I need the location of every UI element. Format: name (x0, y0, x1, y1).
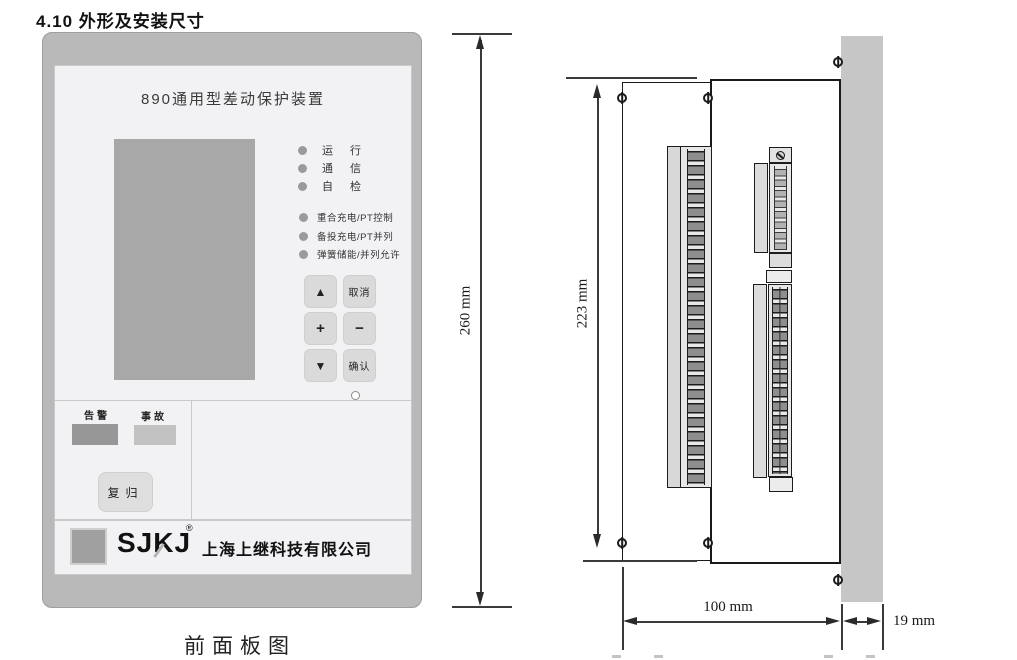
run-led-label: 运 行 (322, 142, 368, 158)
dim260-arrow-up-icon (476, 35, 484, 49)
plus-button: + (304, 312, 337, 345)
fault-label: 事故 (141, 408, 167, 423)
dim19-arrow-left-icon (843, 617, 857, 625)
selfcheck-led-label: 自 检 (322, 178, 368, 194)
fault-lamp-icon (134, 425, 176, 445)
front-panel-caption: 前面板图 (184, 630, 296, 660)
terminal-screw-box (769, 147, 792, 163)
registered-mark: ® (186, 523, 193, 533)
company-name: 上海上继科技有限公司 (202, 536, 372, 560)
reclose-led-icon (299, 213, 308, 222)
dim100-label: 100 mm (697, 599, 759, 616)
led-row-spring: 弹簧储能/并列允许 (299, 247, 400, 261)
dim100-arrow-left-icon (623, 617, 637, 625)
lcd-screen (114, 139, 255, 380)
panel-screw-icon (351, 391, 360, 400)
case-screw-top-right-icon (703, 93, 713, 103)
terminal-upper-cells-strip (774, 166, 787, 250)
dim223-arrow-down-icon (593, 534, 601, 548)
terminal-upper-rail (754, 163, 768, 253)
terminal-lower-cells-strip (772, 287, 788, 474)
led-row-backup: 备投充电/PT并列 (299, 229, 393, 243)
signal-lamp-box: 告警 事故 复归 (54, 400, 192, 520)
dim260-label: 260 mm (457, 286, 474, 336)
selfcheck-led-icon (298, 182, 307, 191)
dim19-label: 19 mm (893, 613, 935, 630)
dim100-left-ext (622, 567, 624, 650)
dim19-left-ext (841, 604, 843, 650)
cutoff-mark (654, 655, 663, 658)
led-row-reclose: 重合充电/PT控制 (299, 210, 393, 224)
dim223-line (597, 92, 599, 542)
spring-led-label: 弹簧储能/并列允许 (317, 247, 400, 261)
case-screw-top-left-icon (617, 93, 627, 103)
terminal-screw-icon (776, 151, 785, 160)
alarm-lamp-icon (72, 424, 118, 445)
cutoff-mark (824, 655, 833, 658)
dim100-line (630, 621, 832, 623)
dim19-right-ext (882, 604, 884, 650)
case-screw-bottom-right-icon (703, 538, 713, 548)
confirm-button: 确认 (343, 349, 376, 382)
panel-screw-bottom-icon (833, 575, 843, 585)
cutoff-mark (866, 655, 875, 658)
cutoff-mark (612, 655, 621, 658)
minus-button: − (343, 312, 376, 345)
terminal-left-rail (668, 147, 681, 487)
comm-led-label: 通 信 (322, 160, 368, 176)
dim260-line (480, 40, 482, 600)
logo-mark-icon (70, 528, 107, 565)
manual-page: 4.10 外形及安装尺寸 890通用型差动保护装置 运 行 通 信 自 检 重合… (0, 0, 1017, 660)
led-row-run: 运 行 (298, 142, 368, 158)
backup-led-icon (299, 232, 308, 241)
terminal-mid-connector-a (769, 253, 792, 268)
case-screw-bottom-left-icon (617, 538, 627, 548)
down-button: ▼ (304, 349, 337, 382)
dim260-arrow-down-icon (476, 592, 484, 606)
terminal-mid-connector-b (766, 270, 792, 283)
front-panel-device: 890通用型差动保护装置 运 行 通 信 自 检 重合充电/PT控制 (42, 32, 422, 608)
logo-strip: SJKJ ® 上海上继科技有限公司 (54, 520, 412, 575)
terminal-left-cells (687, 149, 705, 485)
terminal-block-left (667, 146, 712, 488)
up-button: ▲ (304, 275, 337, 308)
reclose-led-label: 重合充电/PT控制 (317, 210, 393, 224)
led-row-comm: 通 信 (298, 160, 368, 176)
reset-button: 复归 (98, 472, 153, 512)
mounting-panel (841, 36, 883, 602)
lower-right-blank-box (191, 400, 412, 520)
front-panel-upper-area: 890通用型差动保护装置 运 行 通 信 自 检 重合充电/PT控制 (54, 65, 412, 401)
terminal-foot (769, 477, 793, 492)
dim260-bottom-tick (452, 606, 512, 608)
panel-screw-top-icon (833, 57, 843, 67)
alarm-label: 告警 (84, 407, 110, 422)
cancel-button: 取消 (343, 275, 376, 308)
comm-led-icon (298, 164, 307, 173)
run-led-icon (298, 146, 307, 155)
terminal-lower-rail (753, 284, 767, 478)
led-row-selfcheck: 自 检 (298, 178, 368, 194)
dim19-arrow-right-icon (867, 617, 881, 625)
terminal-lower-cells (768, 284, 792, 477)
spring-led-icon (299, 250, 308, 259)
dim223-top-ext (566, 77, 697, 79)
device-title: 890通用型差动保护装置 (55, 88, 411, 109)
dim223-label: 223 mm (574, 279, 591, 329)
terminal-upper-cells (769, 163, 792, 253)
section-title: 4.10 外形及安装尺寸 (36, 7, 205, 32)
backup-led-label: 备投充电/PT并列 (317, 229, 393, 243)
dim223-arrow-up-icon (593, 84, 601, 98)
dim100-arrow-right-icon (826, 617, 840, 625)
dim223-bottom-ext (583, 560, 697, 562)
